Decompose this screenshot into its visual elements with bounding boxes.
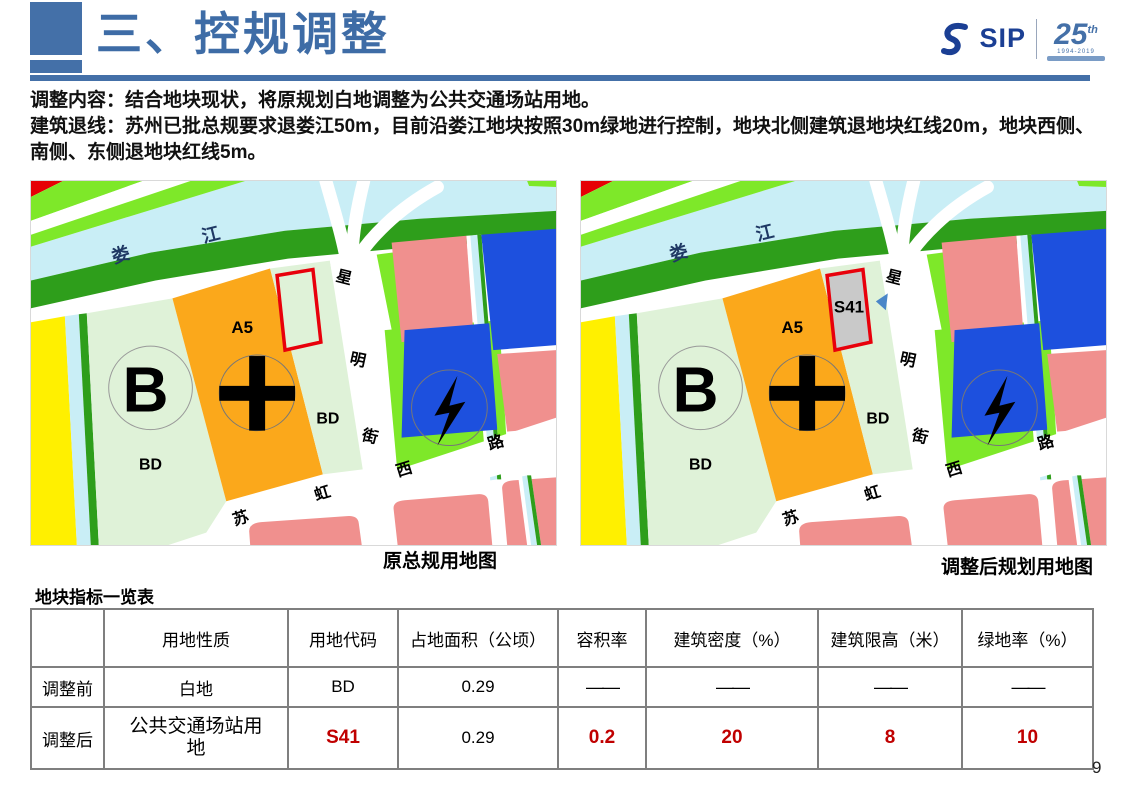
header-far: 容积率 <box>558 609 646 667</box>
slide-page: 三、控规调整 SIP 25th 1994-2019 调整内容：结合地块现状，将原… <box>0 0 1123 794</box>
header-land-use: 用地性质 <box>104 609 288 667</box>
cell-after-green: 10 <box>962 707 1093 769</box>
title-decoration-bar <box>30 60 82 73</box>
intro-text: 调整内容：结合地块现状，将原规划白地调整为公共交通场站用地。 建筑退线：苏州已批… <box>30 88 1098 166</box>
header-land-code: 用地代码 <box>288 609 398 667</box>
table-row-before: 调整前 白地 BD 0.29 —— —— —— —— <box>31 667 1093 707</box>
cell-before-area: 0.29 <box>398 667 558 707</box>
anniversary-number: 25 <box>1054 18 1087 51</box>
cell-before-density: —— <box>646 667 818 707</box>
landuse-map-adjusted: S41 娄 江 B A5 BD BD 星 明 街 苏 虹 西 路 <box>580 180 1107 546</box>
cell-after-far: 0.2 <box>558 707 646 769</box>
cell-before-green: —— <box>962 667 1093 707</box>
landuse-map-original: 娄 江 B A5 BD BD 星 明 街 苏 虹 西 路 <box>30 180 557 546</box>
title-decoration-square <box>30 2 82 55</box>
header-height-limit: 建筑限高（米） <box>818 609 962 667</box>
page-number: 9 <box>1092 758 1101 778</box>
cell-before-height: —— <box>818 667 962 707</box>
map-label-parcel-a5: A5 <box>781 318 803 337</box>
cell-before-far: —— <box>558 667 646 707</box>
map-label-parcel-a5: A5 <box>231 318 253 337</box>
map-label-parcel-bd-2: BD <box>866 411 889 428</box>
header-density: 建筑密度（%） <box>646 609 818 667</box>
cell-after-area: 0.29 <box>398 707 558 769</box>
focus-parcel-original <box>277 270 321 351</box>
intro-line-2: 建筑退线：苏州已批总规要求退娄江50m，目前沿娄江地块按照30m绿地进行控制，地… <box>30 114 1098 166</box>
anniversary-years: 1994-2019 <box>1057 49 1095 55</box>
map-label-parcel-bd-1: BD <box>689 456 712 473</box>
map-label-parcel-b: B <box>673 355 719 426</box>
title-rule <box>30 75 1090 81</box>
plot-indicator-table: 用地性质 用地代码 占地面积（公顷） 容积率 建筑密度（%） 建筑限高（米） 绿… <box>30 608 1094 770</box>
row-label-before: 调整前 <box>31 667 104 707</box>
header-green-rate: 绿地率（%） <box>962 609 1093 667</box>
anniversary-subtext-line <box>1047 56 1105 61</box>
anniversary-mark: 25th 1994-2019 <box>1047 16 1105 61</box>
header-area: 占地面积（公顷） <box>398 609 558 667</box>
cell-after-height: 8 <box>818 707 962 769</box>
sip-logo: SIP 25th 1994-2019 <box>937 16 1105 61</box>
cell-after-code: S41 <box>288 707 398 769</box>
sip-swirl-icon <box>937 21 973 57</box>
map-label-parcel-bd-2: BD <box>316 411 339 428</box>
row-label-after: 调整后 <box>31 707 104 769</box>
table-header-row: 用地性质 用地代码 占地面积（公顷） 容积率 建筑密度（%） 建筑限高（米） 绿… <box>31 609 1093 667</box>
cell-after-use: 公共交通场站用地 <box>104 707 288 769</box>
sip-logo-text: SIP <box>979 23 1026 54</box>
cell-after-density: 20 <box>646 707 818 769</box>
map-label-parcel-s41: S41 <box>834 297 864 316</box>
cell-before-use: 白地 <box>104 667 288 707</box>
intro-line-1: 调整内容：结合地块现状，将原规划白地调整为公共交通场站用地。 <box>30 88 1098 114</box>
caption-adjusted-map: 调整后规划用地图 <box>580 552 1105 579</box>
anniversary-sup: th <box>1087 24 1097 36</box>
header-blank <box>31 609 104 667</box>
table-title: 地块指标一览表 <box>35 583 154 608</box>
map-label-parcel-b: B <box>123 355 169 426</box>
cell-before-code: BD <box>288 667 398 707</box>
logo-divider <box>1036 19 1037 59</box>
page-title: 三、控规调整 <box>96 4 390 64</box>
map-label-parcel-bd-1: BD <box>139 456 162 473</box>
caption-original-map: 原总规用地图 <box>30 546 557 573</box>
table-row-after: 调整后 公共交通场站用地 S41 0.29 0.2 20 8 10 <box>31 707 1093 769</box>
